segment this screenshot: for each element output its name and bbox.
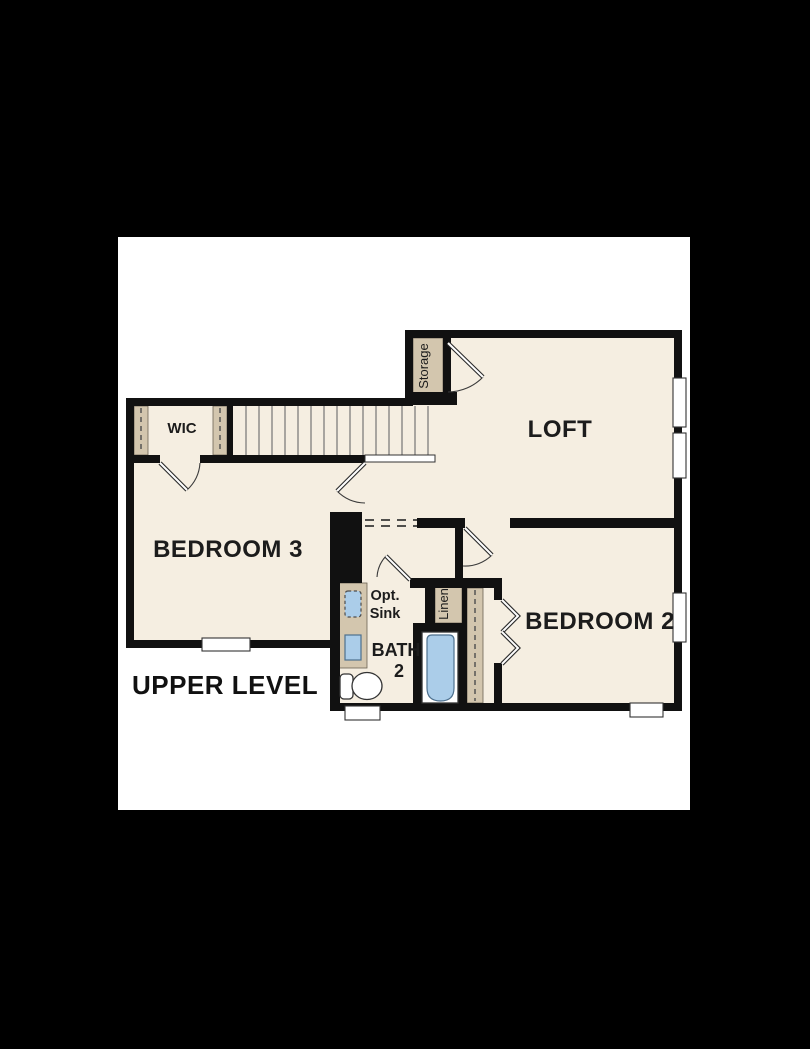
floorplan-drawing: LOFT BEDROOM 3 BEDROOM 2 BATH 2 WIC Stor… <box>118 237 690 810</box>
wall-bottom <box>330 703 682 711</box>
bedroom2-bottom-window <box>630 703 663 717</box>
wall-loft-top <box>405 330 682 338</box>
stair-railing <box>365 455 435 462</box>
linen-label: Linen <box>436 588 451 620</box>
wall-linen-bottom <box>413 623 465 632</box>
wall-closet-right-upper <box>494 588 502 600</box>
loft-label: LOFT <box>528 416 593 443</box>
bedroom3-window <box>202 638 250 651</box>
wic-label: WIC <box>167 420 196 437</box>
wall-wic-bottom-left <box>126 455 160 463</box>
wall-bath-linen-top <box>410 578 502 588</box>
bedroom3-label: BEDROOM 3 <box>153 536 303 563</box>
wall-tub-closet-divider <box>458 632 467 703</box>
wall-stair-top <box>126 398 413 406</box>
wall-bath-left <box>330 583 340 711</box>
storage-label: Storage <box>416 343 431 389</box>
wall-storage-bottom <box>405 392 457 405</box>
sink <box>345 635 361 660</box>
wall-stair-bottom <box>200 455 365 463</box>
optional-sink <box>345 591 361 617</box>
wall-chase <box>330 512 362 583</box>
wall-wic-stair-divider <box>227 398 233 463</box>
toilet-bowl <box>352 673 382 700</box>
opt-sink-label-line1: Opt. <box>371 588 400 604</box>
bathtub <box>427 635 454 701</box>
wall-left <box>126 398 134 648</box>
opt-sink-label-line2: Sink <box>370 606 402 622</box>
bath-label-line2: 2 <box>394 661 404 681</box>
page-background: LOFT BEDROOM 3 BEDROOM 2 BATH 2 WIC Stor… <box>0 0 810 1049</box>
bath-label-line1: BATH <box>372 640 421 660</box>
plan-title: UPPER LEVEL <box>132 670 318 700</box>
wall-closet-right-lower <box>494 663 502 703</box>
toilet-tank <box>340 674 353 699</box>
bedroom2-right-window <box>673 593 686 642</box>
loft-window-lower <box>673 433 686 478</box>
wall-hall-top-right <box>510 518 682 528</box>
loft-window-upper <box>673 378 686 427</box>
wall-hall-top-left <box>417 518 465 528</box>
bedroom2-label: BEDROOM 2 <box>525 608 675 635</box>
floorplan-canvas: LOFT BEDROOM 3 BEDROOM 2 BATH 2 WIC Stor… <box>118 237 690 810</box>
bath-window <box>345 706 380 720</box>
